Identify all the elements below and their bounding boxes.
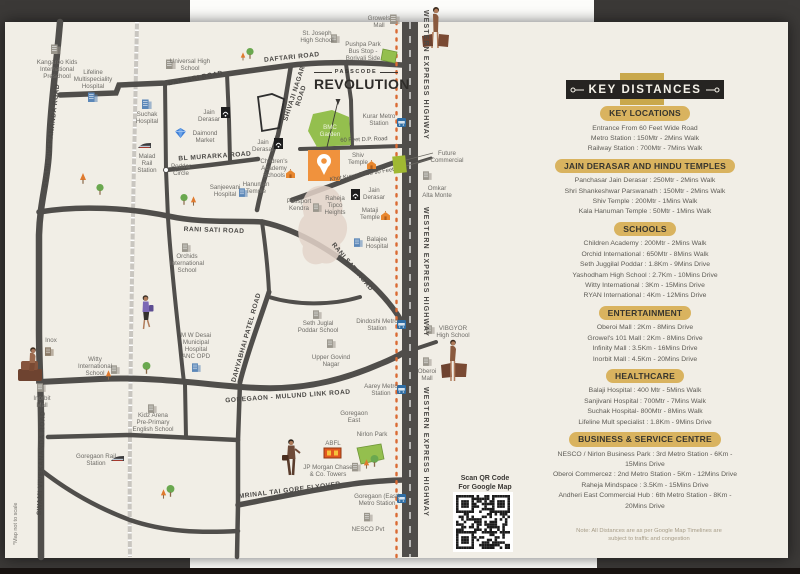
mataji-temple-icon <box>381 210 390 220</box>
map-label: OberoiMall <box>418 368 437 382</box>
map-label: HanumanTemple <box>243 181 270 195</box>
road-cross-437 <box>48 435 238 440</box>
map-label: Upper GovindNagar <box>312 354 351 368</box>
map-label: Children'sAcademySchools <box>260 158 287 179</box>
map-label: WESTERN EXPRESS HIGHWAY <box>422 10 429 140</box>
map-label: PoddarCircle <box>171 163 191 177</box>
ribbon-ornament-left <box>570 85 584 95</box>
tree-icon <box>80 173 86 184</box>
road-connector-seth <box>262 222 269 292</box>
map-label: WESTERN EXPRESS HIGHWAY <box>422 387 429 517</box>
distance-item: Raheja Mindspace : 3.5Km - 15Mins Drive <box>547 481 743 491</box>
road-connector-kidz <box>185 384 186 437</box>
map-label: 60 Feet D.P. Road <box>340 136 387 144</box>
road-60-feet-dp <box>300 146 402 149</box>
map-label: GrowelsMall <box>368 15 391 29</box>
panel-section: SCHOOLSChildren Academy : 200Mtr - 2Mins… <box>547 222 743 302</box>
tree-icon <box>371 455 379 467</box>
distance-item: Railway Station : 700Mtr - 7Mins Walk <box>547 144 743 154</box>
tree-icon <box>161 489 166 498</box>
map-label: InorbitMall <box>33 395 50 409</box>
map-label: MaladRailStation <box>137 153 157 174</box>
map-label: Pushpa ParkBus Stop -Borivali Side <box>345 41 381 62</box>
section-title-pill: SCHOOLS <box>614 222 675 237</box>
key-distances-ribbon: KEY DISTANCES <box>566 80 724 99</box>
ribbon-ornament-right <box>706 85 720 95</box>
map-label: OrchidsInternationalSchool <box>170 253 204 274</box>
dindoshi-metro-icon <box>397 320 406 329</box>
section-title-pill: JAIN DERASAR AND HINDU TEMPLES <box>555 159 735 174</box>
panel-note: Note: All Distances are as per Google Ma… <box>575 527 723 543</box>
person-sitting-bags-illustration <box>441 340 467 381</box>
map-label: JainDerasar <box>198 109 220 123</box>
map-label: SuchakHospital <box>136 111 158 125</box>
distance-item: Shiv Temple : 200Mtr - 1Mins Walk <box>547 197 743 207</box>
tree-icon <box>180 194 187 205</box>
qr-code <box>453 492 513 552</box>
map-label: Dindoshi MetroStation <box>356 318 398 332</box>
map-label: Inox <box>45 337 58 344</box>
distance-item: Children Academy : 200Mtr - 2Mins Walk <box>547 239 743 249</box>
map-label: M W DesaiMunicipalHospitalANC OPD <box>181 332 211 360</box>
map-label: WittyInternationalSchool <box>78 356 112 377</box>
key-distances-panel: KEY LOCATIONSEntrance From 60 Feet Wide … <box>547 106 743 516</box>
qr-caption-line-1: Scan QR Code <box>440 474 530 483</box>
map-label: Nirlon Park <box>357 431 389 438</box>
panel-section: BUSINESS & SERVICE CENTRENESCO / Nirlon … <box>547 432 743 512</box>
distance-item: Growel's 101 Mall : 2Km - 8Mins Drive <box>547 334 743 344</box>
distance-item: Kala Hanuman Temple : 50Mtr - 1Mins Walk <box>547 207 743 217</box>
section-title-pill: KEY LOCATIONS <box>600 106 690 121</box>
jp-morgan-towers-icon <box>352 463 361 472</box>
qr-caption-line-2: For Google Map <box>440 483 530 492</box>
distance-item: Sanjivani Hospital : 700Mtr - 7Mins Walk <box>547 397 743 407</box>
shivaji-block-outline <box>258 94 284 131</box>
map-label: NESCO Pvt <box>352 526 385 533</box>
section-title-pill: HEALTHCARE <box>606 369 684 384</box>
kurar-metro-icon <box>397 118 406 127</box>
upper-govind-nagar-icon <box>327 339 336 348</box>
panel-section: JAIN DERASAR AND HINDU TEMPLESPanchasar … <box>547 159 743 218</box>
road-stub-future <box>418 158 431 162</box>
orchids-school-icon <box>182 243 191 252</box>
project-title-block: PASSCODE REVOLUTION <box>314 69 398 92</box>
nesco-icon <box>364 513 373 522</box>
tree-icon <box>167 485 175 497</box>
map-label: Kangaroo KidsInternationalPreschool <box>37 59 78 80</box>
distance-item: Entrance From 60 Feet Wide Road <box>547 124 743 134</box>
map-label: SWAMI VIVEKANANDA ROAD <box>42 84 62 189</box>
omkar-alta-monte-icon <box>423 171 432 180</box>
person-businessman-illustration <box>282 439 300 475</box>
distance-item: Suchak Hospital- 800Mtr - 8Mins Walk <box>547 407 743 417</box>
section-title-pill: BUSINESS & SERVICE CENTRE <box>569 432 721 447</box>
panel-section: ENTERTAINMENTOberoi Mall : 2Km - 8Mins D… <box>547 306 743 365</box>
map-label: RahejaTipcoHeights <box>325 195 346 216</box>
malad-rail-station-icon <box>138 143 151 148</box>
seth-juglal-icon <box>313 310 322 319</box>
distance-item: Seth Juggilal Poddar : 1.8Km - 9Mins Dri… <box>547 260 743 270</box>
distance-item: Infinity Mall : 3.5Km - 16Mins Drive <box>547 344 743 354</box>
map-label: Aarey MetroStation <box>364 383 398 397</box>
map-label: Seth JuglalPoddar School <box>298 320 339 334</box>
growels-mall-icon <box>390 15 400 25</box>
distance-item: Orchid International : 650Mtr - 8Mins Wa… <box>547 250 743 260</box>
distance-item: Lifeline Mult specialist : 1.8Km - 9Mins… <box>547 418 743 428</box>
road-connector-govind <box>269 297 360 303</box>
road-network <box>39 22 436 557</box>
map-label: Universal HighSchool <box>170 58 211 72</box>
inox-icon <box>45 347 54 356</box>
distance-item: RYAN International : 4Km - 12Mins Drive <box>547 291 743 301</box>
section-title-pill: ENTERTAINMENT <box>599 306 692 321</box>
map-disclaimer: *Map not to scale <box>13 485 19 545</box>
future-commercial-plot <box>392 155 407 173</box>
railway-line <box>130 22 137 557</box>
distance-item: Panchasar Jain Derasar : 250Mtr - 2Mins … <box>547 176 743 186</box>
distance-item: Shri Shankeshwar Parswanath : 150Mtr - 2… <box>547 187 743 197</box>
map-label: WESTERN EXPRESS HIGHWAY <box>422 207 429 337</box>
distance-item: Oberoi Mall : 2Km - 8Mins Drive <box>547 323 743 333</box>
tree-icon <box>241 52 246 60</box>
map-label: FutureCommercial <box>430 150 463 164</box>
panel-section: KEY LOCATIONSEntrance From 60 Feet Wide … <box>547 106 743 155</box>
person-walking-illustration <box>143 295 154 329</box>
map-label: St. JosephHigh School <box>300 30 333 44</box>
brochure-location-map-page: SWAMI VIVEKANANDA ROADSWAMI VIVEKANANDA … <box>0 0 800 574</box>
note-line-1: Note: All Distances are as per Google Ma… <box>575 527 723 535</box>
map-label: SanjeevaniHospital <box>210 184 241 198</box>
mw-desai-hospital-icon <box>192 363 201 372</box>
distance-item: Yashodham High School : 2.7Km - 10Mins D… <box>547 271 743 281</box>
map-label: JainDerasar <box>252 139 274 153</box>
map-label: Goregaon (East)Metro Station <box>354 493 400 507</box>
map-label: PassportKendra <box>287 198 312 212</box>
project-name: REVOLUTION <box>314 76 398 92</box>
ribbon-title: KEY DISTANCES <box>588 84 701 96</box>
map-label: Kidz ArenaPre-PrimaryEnglish School <box>133 412 174 433</box>
map-label: GOREGAON - MULUND LINK ROAD <box>225 389 351 405</box>
distance-item: Witty International : 3Km - 15Mins Drive <box>547 281 743 291</box>
map-label: LifelineMultispecialityHospital <box>74 69 113 90</box>
map-label: OmkarAlta Monte <box>422 185 452 199</box>
witty-school-icon <box>111 365 120 374</box>
project-tagline: PASSCODE <box>314 69 398 75</box>
western-express-highway <box>397 22 419 557</box>
road-bottom-diagonal <box>41 470 238 532</box>
map-label: DaimondMarket <box>193 130 218 144</box>
tree-icon <box>246 48 253 59</box>
distance-item: Inorbit Mall : 4.5Km - 20Mins Drive <box>547 355 743 365</box>
tree-icon <box>191 196 196 205</box>
map-label: Kurar MetroStation <box>363 113 396 127</box>
jain-derasar-icon-2 <box>274 138 283 149</box>
balajee-hospital-icon <box>354 238 363 247</box>
shiv-temple-icon <box>367 159 376 169</box>
distance-item: Andheri East Commercial Hub : 6th Metro … <box>547 491 743 512</box>
distance-item: Oberoi Commercez : 2nd Metro Station - 5… <box>547 470 743 480</box>
map-label: Goregaon RailStation <box>76 453 116 467</box>
pushpa-park-area <box>381 49 397 63</box>
road-stub-oberoi <box>418 342 436 348</box>
map-label: RANI SATI ROAD <box>184 226 245 235</box>
map-label: MatajiTemple <box>360 207 381 221</box>
distance-item: NESCO / Nirlon Business Park : 3rd Metro… <box>547 450 743 471</box>
nirlon-park-area <box>357 444 384 464</box>
tree-icon <box>96 184 103 195</box>
map-label: GoregaonEast <box>340 410 368 424</box>
suchak-hospital-icon <box>142 100 152 110</box>
map-label: JP Morgan Chase& Co. Towers <box>303 464 353 478</box>
map-label: ABFL <box>325 440 341 447</box>
abfl-icon <box>324 448 341 458</box>
abfl-icon-window-2 <box>334 451 338 456</box>
daimond-market-icon <box>175 128 186 138</box>
childrens-academy-icon <box>286 168 295 178</box>
jain-derasar-icon <box>221 107 230 118</box>
jain-derasar-icon-3 <box>351 189 360 200</box>
map-label: DAFTARI ROAD <box>168 70 224 88</box>
map-label: SWAMI VIVEKANANDA ROAD <box>36 411 47 516</box>
distance-item: Balaji Hospital : 400 Mtr - 5Mins Walk <box>547 386 743 396</box>
map-label: JainDerasar <box>363 187 385 201</box>
oberoi-mall-icon <box>423 357 432 366</box>
aarey-metro-icon <box>397 385 406 394</box>
road-rani-sati <box>39 208 262 222</box>
poddar-circle-junction <box>164 168 169 173</box>
map-label: ShivTemple <box>348 152 369 166</box>
distance-item: Metro Station : 150Mtr - 2Mins Walk <box>547 134 743 144</box>
abfl-icon-window <box>327 451 331 456</box>
map-label: DAHYABHAI PATEL ROAD <box>230 292 262 383</box>
map-label: VIBGYORHigh School <box>436 325 469 339</box>
panel-section: HEALTHCAREBalaji Hospital : 400 Mtr - 5M… <box>547 369 743 428</box>
tree-icon <box>143 362 151 374</box>
map-label: BalajeeHospital <box>366 236 388 250</box>
qr-caption: Scan QR Code For Google Map <box>440 474 530 492</box>
note-line-2: subject to traffic and congestion <box>575 535 723 543</box>
